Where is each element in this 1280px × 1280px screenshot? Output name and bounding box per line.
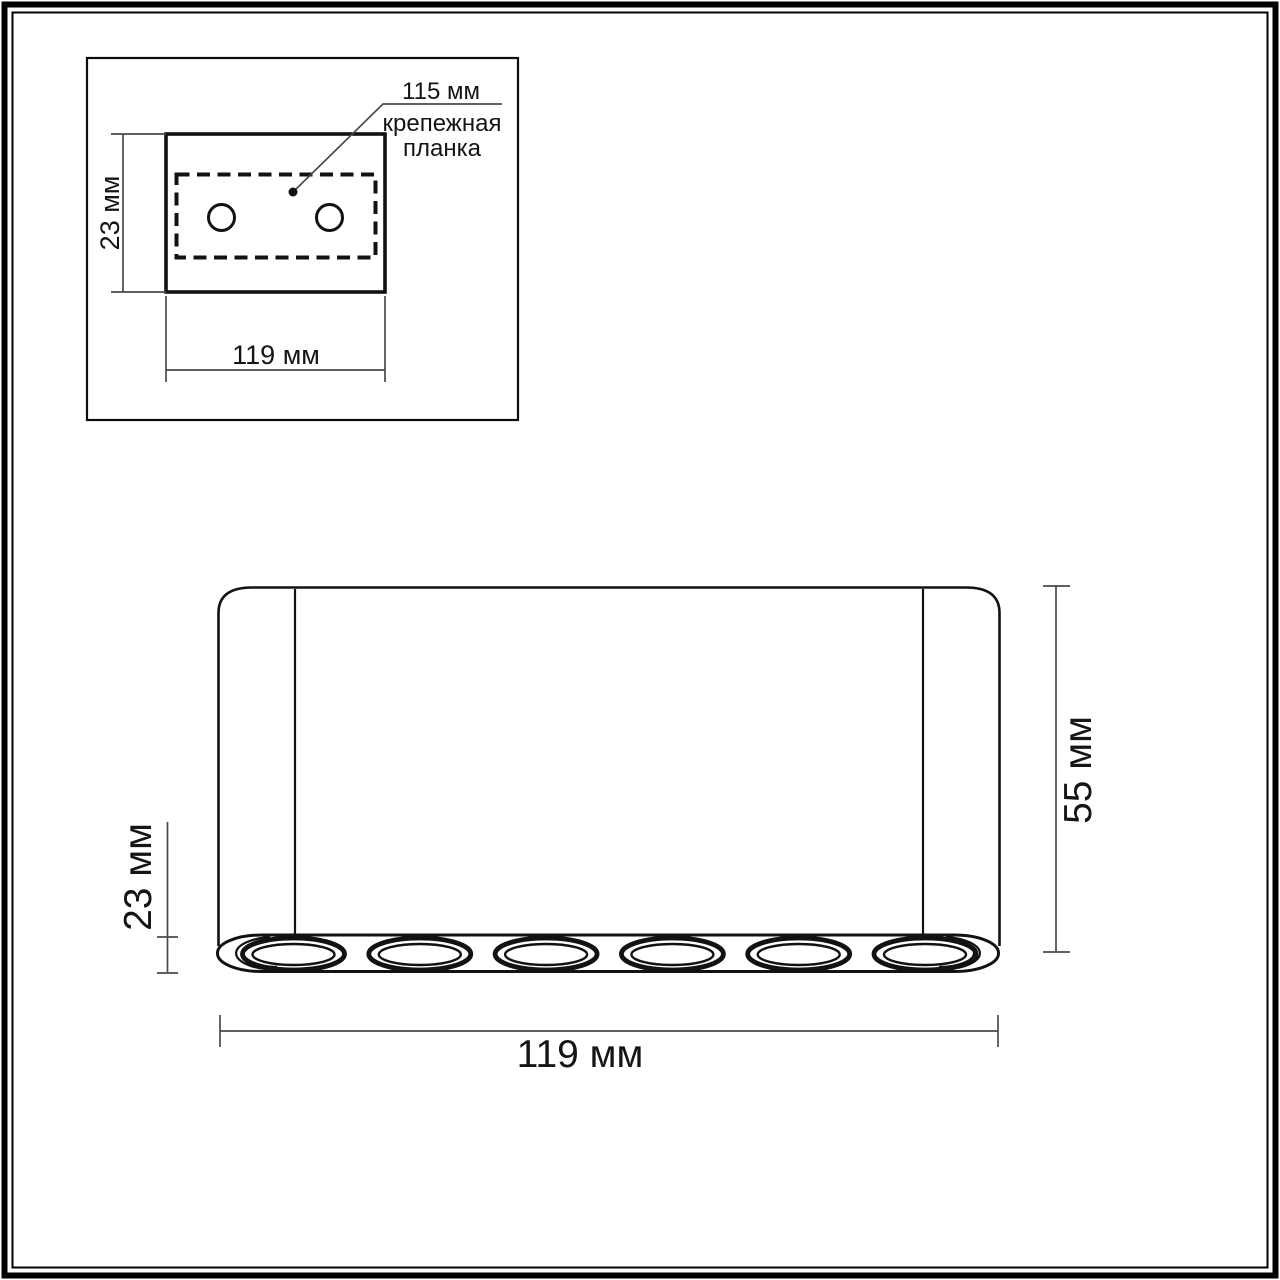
inset-panel: 115 мм крепежная планка 23 мм 119 мм: [87, 58, 518, 420]
callout-value-label: 115 мм: [402, 78, 480, 105]
drawing-page: 115 мм крепежная планка 23 мм 119 мм: [0, 0, 1280, 1280]
front-view: 23 мм 55 мм 119 мм: [117, 586, 1100, 1076]
technical-drawing-canvas: 115 мм крепежная планка 23 мм 119 мм: [0, 0, 1280, 1280]
inset-height-label: 23 мм: [95, 176, 125, 251]
body-height-dimension: 55 мм: [1043, 586, 1100, 952]
callout-name-line1: крепежная: [383, 110, 502, 137]
callout-name-line2: планка: [403, 135, 482, 162]
width-dimension: 119 мм: [220, 1015, 998, 1076]
inset-width-label: 119 мм: [232, 340, 320, 370]
width-label: 119 мм: [517, 1033, 644, 1076]
body-height-label: 55 мм: [1057, 716, 1100, 824]
fixture-body-outline: [219, 588, 1000, 947]
ring-height-label: 23 мм: [117, 823, 160, 931]
callout-dot: [289, 188, 298, 197]
ring-height-dimension: 23 мм: [117, 822, 178, 973]
